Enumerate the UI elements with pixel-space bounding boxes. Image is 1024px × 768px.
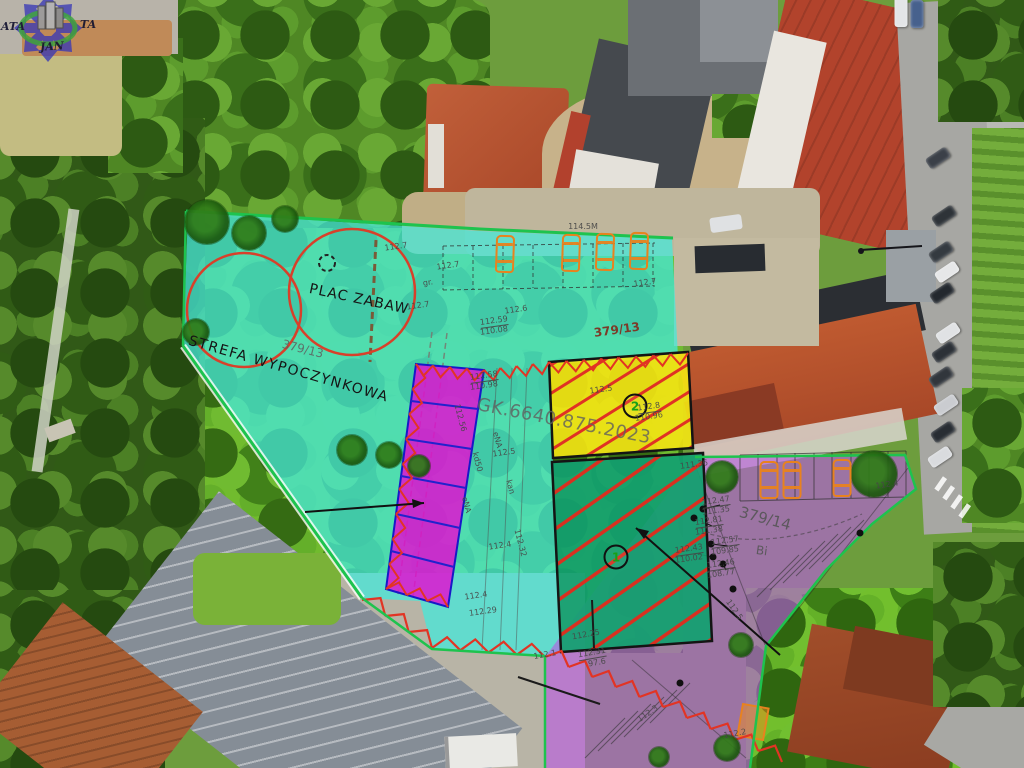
utility-point-icon xyxy=(730,586,737,593)
crosswalk xyxy=(934,476,971,518)
street-lamp xyxy=(858,246,922,254)
parking-car-icon xyxy=(833,459,852,497)
tree-symbol-icon xyxy=(851,451,897,497)
site-plan-overlay xyxy=(0,0,1024,768)
parking-car-icon xyxy=(783,461,802,499)
tree-symbol-icon xyxy=(337,435,367,465)
zone-marker-1: 1 xyxy=(604,545,629,570)
land-use-label: Bi xyxy=(755,543,768,558)
parking-car-icon xyxy=(629,232,649,271)
aerial-site-plan: PLAC ZABAW STREFA WYPOCZYNKOWA GK.6640.8… xyxy=(0,0,1024,768)
parking-car-icon xyxy=(760,461,779,499)
tree-symbol-icon xyxy=(408,455,430,477)
agency-watermark: ATA TA JAN xyxy=(0,0,130,70)
utility-point-icon xyxy=(857,530,864,537)
elevation-label: gr. xyxy=(422,278,433,287)
parking-car-icon xyxy=(595,233,615,272)
tree-symbol-icon xyxy=(729,633,753,657)
tree-symbol-icon xyxy=(376,442,402,468)
watermark-text-right: TA xyxy=(80,18,96,31)
watermark-text-bottom: JAN xyxy=(40,39,64,53)
watermark-text-left: ATA xyxy=(1,20,25,33)
watermark-graphic xyxy=(0,0,130,70)
parking-car-icon xyxy=(495,235,515,274)
tree-symbol-icon xyxy=(272,206,298,232)
tree-symbol-icon xyxy=(185,200,229,244)
elevation-label: 114.5M xyxy=(568,223,598,231)
tree-symbol-icon xyxy=(232,216,266,250)
tree-symbol-icon xyxy=(706,461,738,493)
parked-car xyxy=(911,0,924,28)
parked-car xyxy=(895,0,908,27)
parking-car-icon xyxy=(561,234,581,273)
tree-symbol-icon xyxy=(649,747,669,767)
utility-point-icon xyxy=(677,680,684,687)
